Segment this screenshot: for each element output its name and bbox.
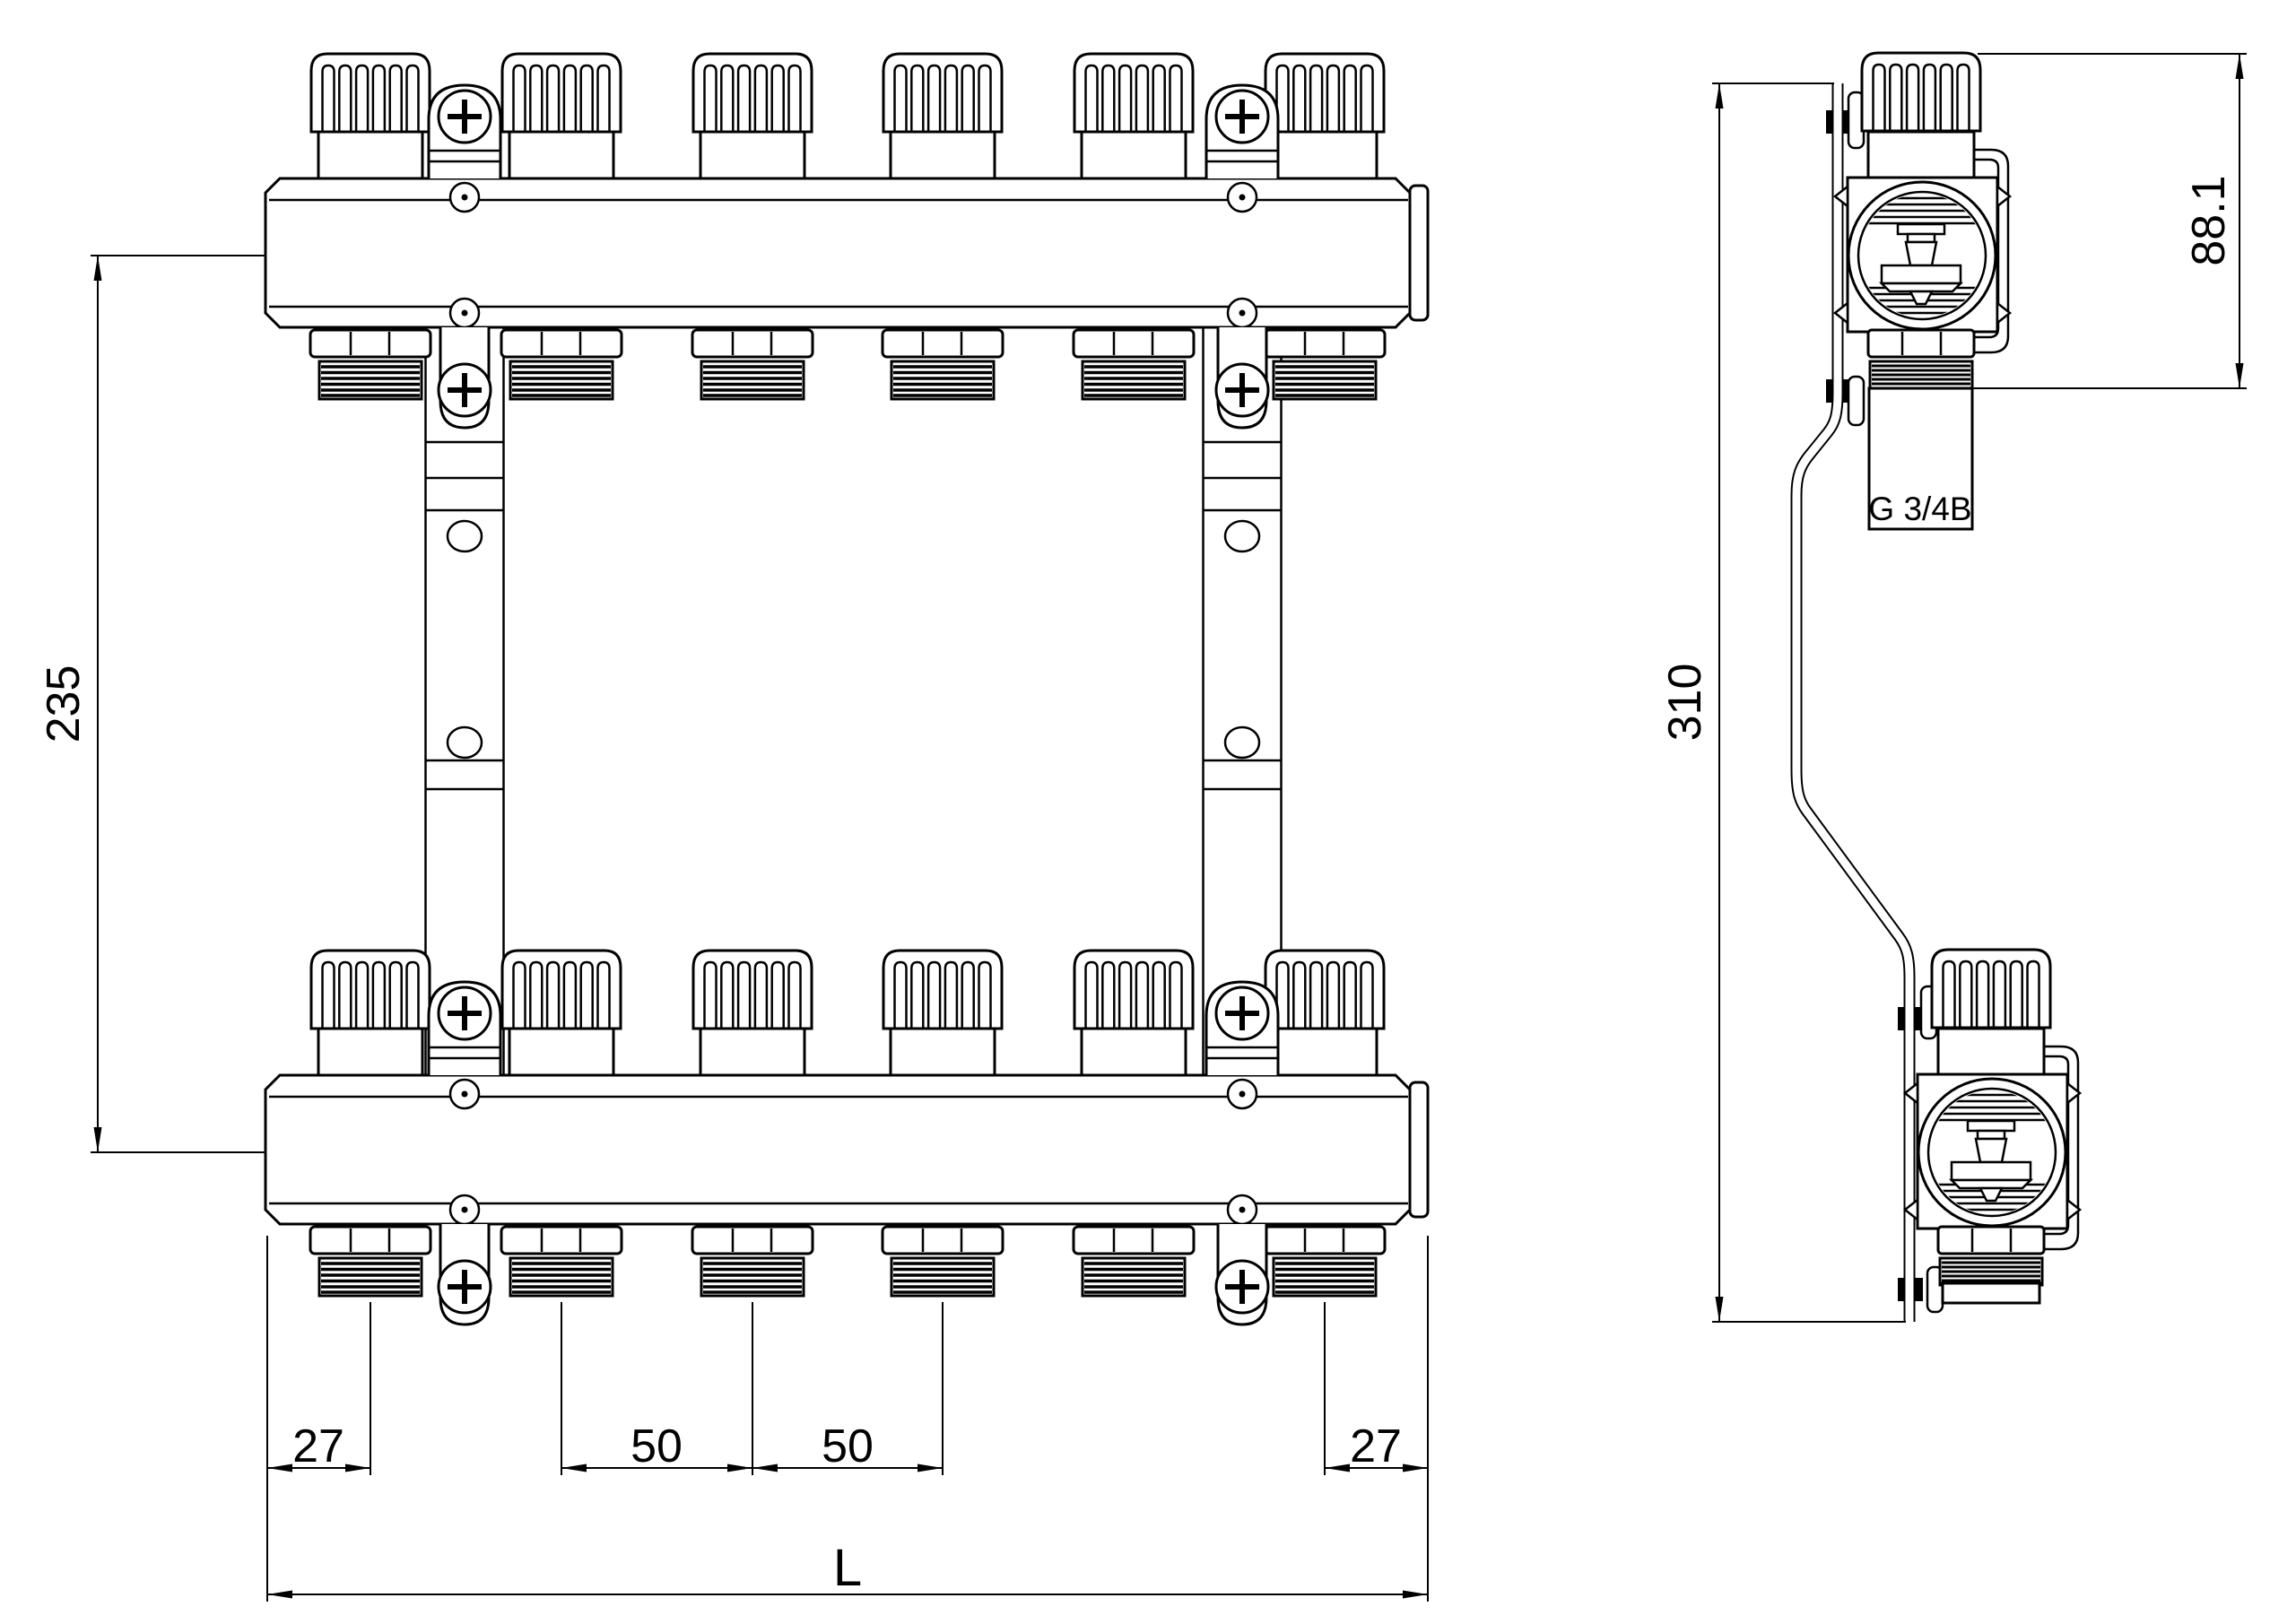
thread-spec-label: G 3/4B <box>1868 491 1971 527</box>
dim-label-27-left: 27 <box>292 1420 344 1472</box>
dimension-235 <box>91 256 265 1152</box>
union-stub <box>1943 1283 2039 1303</box>
dim-label-50-left: 50 <box>631 1420 683 1472</box>
side-valve-bottom <box>1905 950 2080 1285</box>
side-valve-top <box>1835 53 2010 388</box>
dim-label-235: 235 <box>38 665 90 743</box>
front-view: 235 27 50 50 27 <box>38 54 1428 1602</box>
dim-label-88-1: 88.1 <box>2183 175 2235 265</box>
dim-label-50-right: 50 <box>822 1420 874 1472</box>
dim-label-L: L <box>833 1539 862 1597</box>
side-view: G 3/4B 310 88.1 <box>1659 53 2247 1322</box>
drawing-canvas: 235 27 50 50 27 <box>0 0 2296 1624</box>
dim-label-27-right: 27 <box>1350 1420 1402 1472</box>
dim-label-310: 310 <box>1659 664 1711 742</box>
manifold-technical-drawing: 235 27 50 50 27 <box>0 0 2296 1624</box>
